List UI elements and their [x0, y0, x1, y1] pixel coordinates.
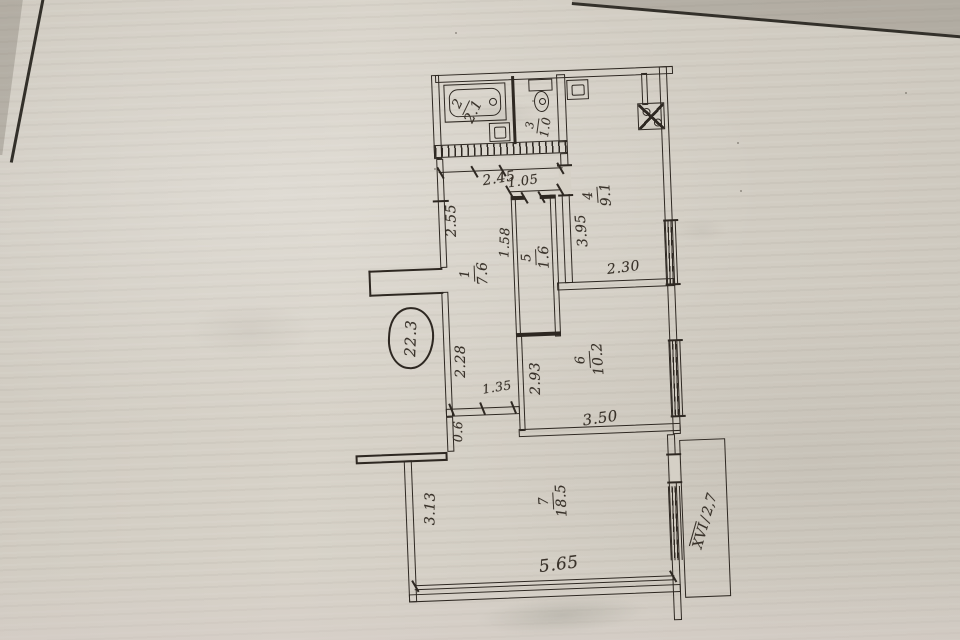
wall-closet-left — [511, 196, 521, 336]
wall-ledge-left — [355, 452, 447, 465]
wall-room7-left-exterior — [404, 460, 417, 602]
stove-vent-shaft-icon — [637, 102, 665, 130]
wall-kitchen-bottom — [557, 278, 675, 291]
dim-1-35: 1.35 — [481, 377, 513, 397]
dim-1-58: 1.58 — [497, 227, 513, 258]
room-number: 7 — [537, 493, 554, 510]
dim-5-65: 5.65 — [538, 552, 580, 577]
floor-plan: 1 7.6 2 2.1 3 1.0 4 9.1 5 1.6 6 10.2 7 1… — [358, 37, 781, 640]
washbasin-inner — [494, 126, 506, 138]
sink-inner — [571, 84, 584, 95]
wall-bath-block-hatched — [434, 140, 568, 158]
dim-2-55: 2.55 — [443, 204, 460, 237]
toilet-tank-icon — [528, 79, 552, 92]
wall-bath-toilet-partition — [511, 76, 517, 144]
room-3-label: 3 1.0 — [523, 114, 553, 138]
room-1-label: 1 7.6 — [458, 261, 490, 286]
burner-dot — [654, 118, 662, 126]
dim-tick — [433, 200, 449, 202]
room-area: 7.6 — [474, 261, 491, 285]
toilet-bowl-dot — [539, 98, 546, 105]
total-area-value: 22.3 — [401, 319, 420, 357]
kitchen-window — [664, 220, 678, 284]
dim-2-93: 2.93 — [527, 362, 544, 395]
washbasin-icon — [489, 122, 511, 142]
room-area: 1.6 — [536, 245, 553, 269]
burner-dot — [642, 108, 650, 116]
room-area: 9.1 — [597, 182, 614, 207]
wall-top-exterior — [435, 66, 673, 83]
dim-tick — [558, 194, 573, 196]
dim-2-30: 2.30 — [606, 258, 641, 278]
room-number: 6 — [574, 351, 591, 368]
room-area: 1.0 — [537, 116, 553, 138]
total-area-oval: 22.3 — [386, 306, 436, 371]
window-end-tick — [663, 219, 678, 221]
room-5-label: 5 1.6 — [520, 245, 552, 270]
window-end-tick — [666, 283, 681, 285]
dim-1-05: 1.05 — [507, 172, 540, 191]
room-area: 10.2 — [589, 342, 607, 376]
wall-vent-column — [641, 73, 648, 105]
paper-speck — [905, 92, 907, 94]
dim-3-95: 3.95 — [573, 213, 592, 247]
room-6-label: 6 10.2 — [573, 342, 607, 377]
room-4-label: 4 9.1 — [581, 182, 614, 208]
scanned-floorplan-page: 1 7.6 2 2.1 3 1.0 4 9.1 5 1.6 6 10.2 7 1… — [0, 0, 960, 640]
dim-2-28: 2.28 — [453, 345, 469, 378]
room6-window — [668, 340, 683, 416]
room-number: 4 — [581, 187, 598, 204]
sink-icon — [566, 79, 589, 100]
window-end-tick — [671, 415, 686, 417]
room-area: 18.5 — [552, 483, 570, 517]
wall-hall-left-lower — [441, 292, 453, 417]
entrance-porch — [368, 268, 443, 297]
paper-speck — [455, 32, 457, 34]
window-end-tick — [668, 339, 683, 341]
room-7-label: 7 18.5 — [537, 483, 570, 518]
page-corner-shade-left — [0, 0, 38, 155]
room-number: 1 — [459, 266, 475, 283]
dim-0-6: 0.6 — [450, 421, 465, 443]
dim-3-13: 3.13 — [422, 492, 438, 525]
toilet-bowl-icon — [534, 91, 550, 113]
balcony-door-opening — [669, 454, 679, 482]
room-number: 5 — [520, 249, 536, 266]
wall-room6-left — [516, 336, 526, 431]
